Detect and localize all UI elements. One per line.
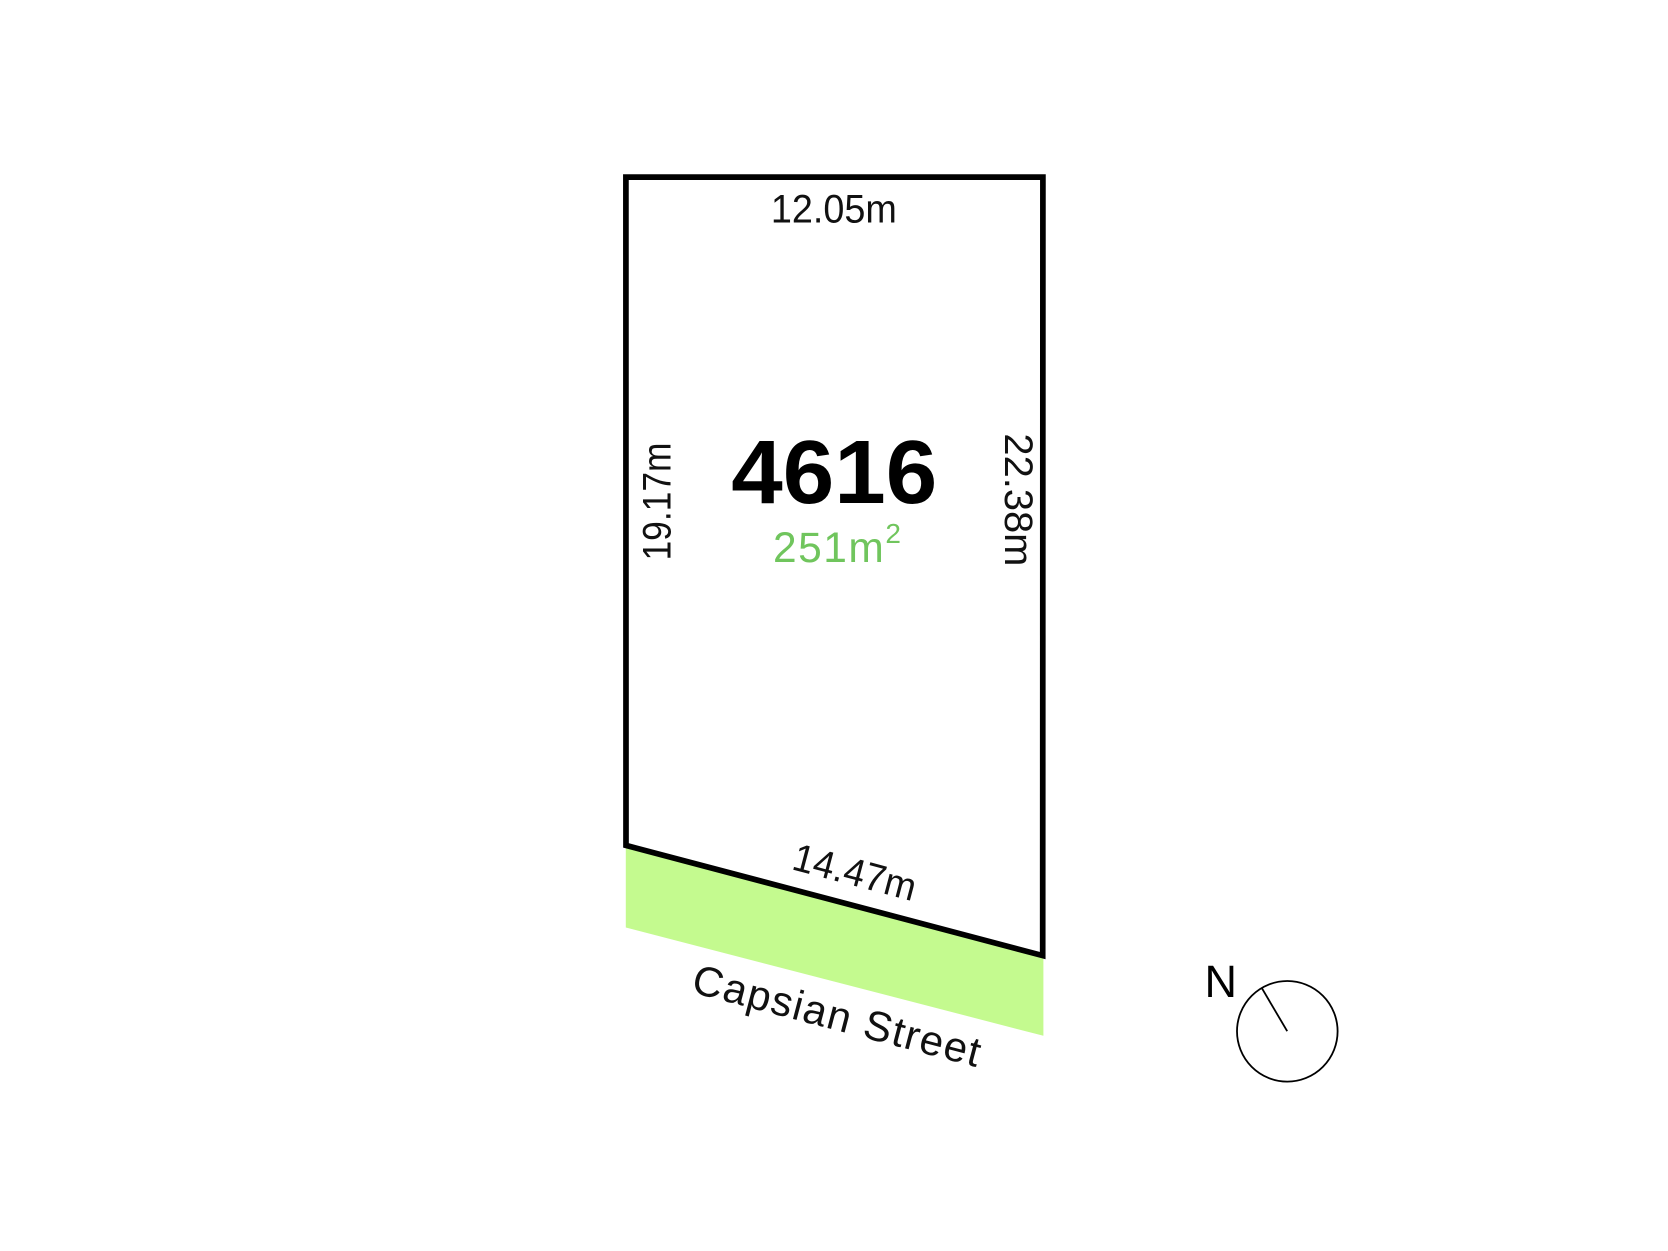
svg-text:19.17m: 19.17m [635, 443, 679, 561]
svg-text:251m2: 251m2 [773, 518, 902, 572]
svg-text:22.38m: 22.38m [996, 433, 1040, 566]
svg-text:N: N [1205, 956, 1238, 1007]
svg-text:4616: 4616 [731, 423, 937, 523]
svg-text:12.05m: 12.05m [771, 187, 897, 231]
